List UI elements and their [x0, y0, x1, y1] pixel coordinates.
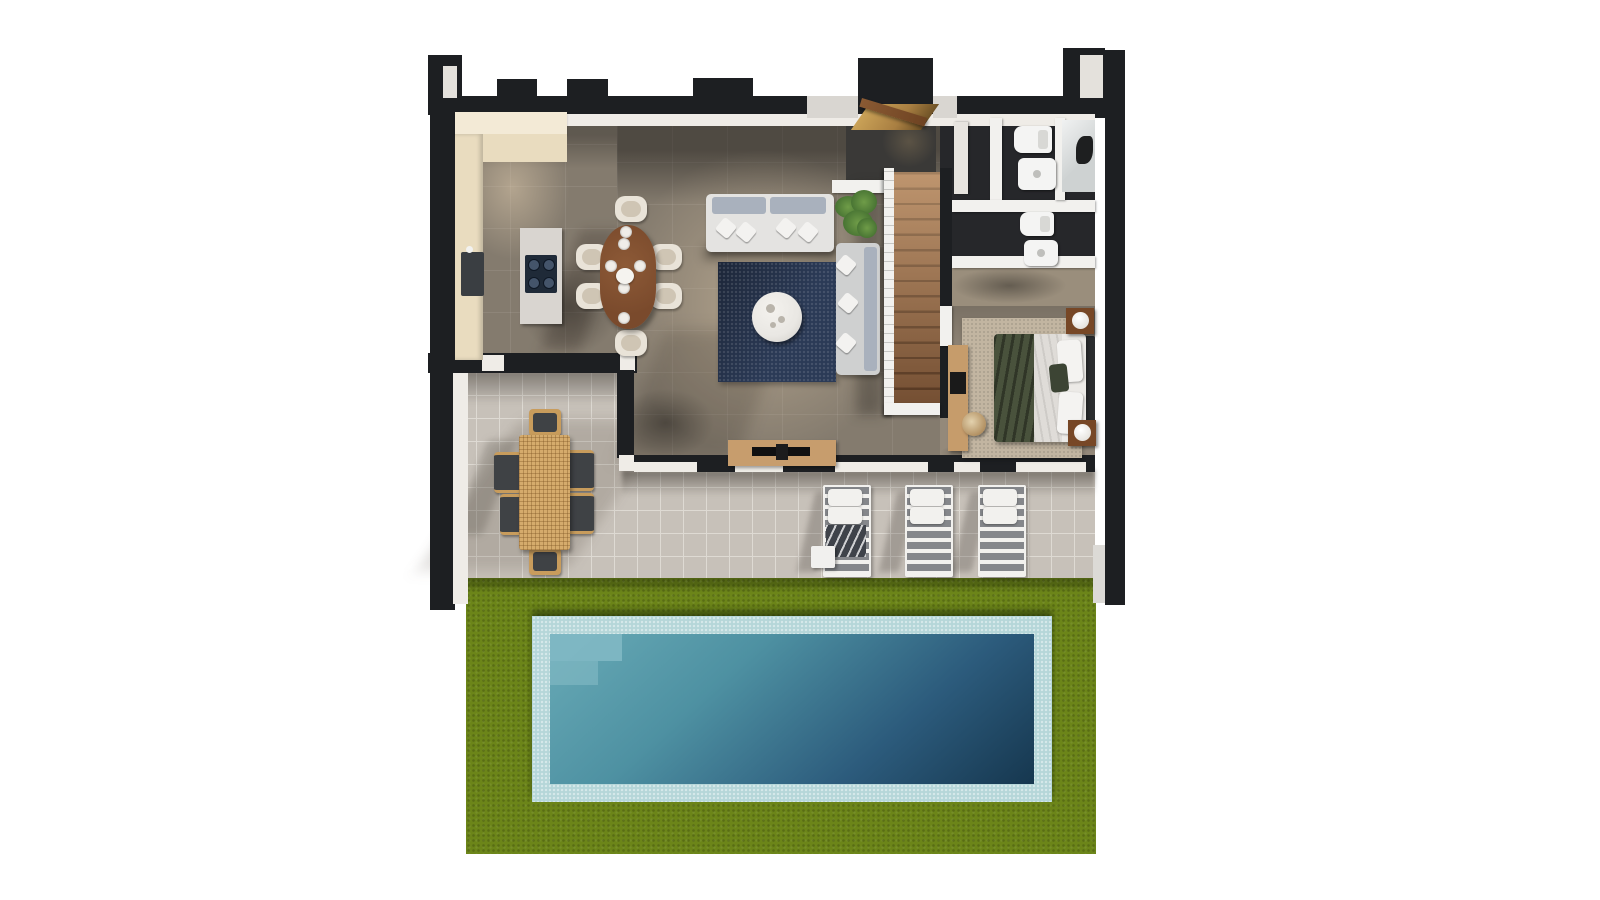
wall-right: [1105, 50, 1125, 605]
place-setting: [605, 260, 617, 272]
outdoor-chair: [566, 493, 594, 534]
door-frame: [620, 355, 635, 371]
stair-railing: [884, 168, 894, 415]
wall-parapet: [497, 79, 537, 109]
pillow: [735, 221, 758, 244]
sofa-side: [836, 243, 880, 375]
table-decor: [778, 316, 785, 323]
kitchen-counter: [470, 134, 567, 162]
washbasin: [1018, 158, 1056, 190]
coffee-table: [752, 292, 802, 342]
sun-lounger: [978, 485, 1026, 577]
pillow: [715, 217, 738, 240]
bed-cushion: [1049, 363, 1070, 393]
pool-step: [550, 661, 598, 685]
stair-landing: [884, 403, 940, 415]
wall-parapet: [567, 79, 608, 109]
lounger-pillow: [983, 507, 1017, 524]
pillow: [797, 221, 820, 244]
door-frame: [619, 455, 634, 471]
door-frame: [482, 355, 504, 371]
plant-foliage: [857, 218, 877, 238]
faucet: [466, 246, 473, 253]
desk: [948, 345, 968, 451]
laptop: [950, 372, 966, 394]
pillow: [835, 332, 858, 355]
lounger-pillow: [828, 489, 862, 506]
table-decor: [766, 304, 775, 313]
kitchen-counter: [455, 112, 567, 134]
washbasin: [1024, 240, 1058, 266]
sofa-cushion: [864, 247, 877, 371]
outdoor-chair: [494, 452, 522, 493]
outdoor-dining-table: [519, 435, 570, 550]
lounger-pillow: [828, 507, 862, 524]
wall-connector: [617, 370, 634, 458]
burner: [543, 277, 555, 289]
sun-lounger: [905, 485, 953, 577]
place-setting: [618, 238, 630, 250]
wall-bedroom: [940, 306, 952, 346]
sofa-cushion: [712, 197, 766, 214]
outdoor-chair: [566, 450, 594, 491]
wall-face: [443, 66, 457, 98]
toilet: [1014, 126, 1052, 153]
glass-wall-mullion: [928, 455, 954, 472]
pool-step: [550, 634, 622, 661]
table-lamp: [1074, 424, 1091, 441]
side-table: [811, 546, 835, 568]
burner: [543, 259, 555, 271]
potted-plant: [833, 190, 879, 246]
sofa-cushion: [770, 197, 826, 214]
tv-stand: [776, 444, 788, 460]
wall-bathroom: [990, 118, 1002, 200]
pool-water: [550, 634, 1034, 784]
terrace-parapet: [453, 370, 468, 604]
outdoor-chair: [529, 548, 561, 575]
lounger-pillow: [910, 507, 944, 524]
burner: [528, 259, 540, 271]
place-setting: [618, 312, 630, 324]
table-centerpiece: [616, 268, 634, 284]
floorplan-render: [0, 0, 1600, 900]
lounger-pillow: [983, 489, 1017, 506]
sofa-main: [706, 194, 834, 252]
wall-bathroom: [952, 200, 1095, 212]
pillow: [775, 217, 798, 240]
lounger-pillow: [910, 489, 944, 506]
outdoor-chair: [529, 409, 561, 436]
place-setting: [620, 226, 632, 238]
staircase: [894, 172, 940, 403]
pillow: [837, 292, 860, 315]
wall-face: [1080, 55, 1103, 98]
wall-parapet: [693, 78, 753, 108]
wall-face: [807, 96, 858, 118]
toilet: [1020, 212, 1054, 236]
bathroom-vanity: [954, 122, 968, 194]
wall-face: [1093, 545, 1105, 603]
table-lamp: [1072, 312, 1089, 329]
shower-fixture: [1076, 136, 1093, 164]
glass-wall-mullion: [1086, 455, 1095, 472]
pillow: [835, 254, 858, 277]
burner: [528, 277, 540, 289]
kitchen-sink: [461, 252, 484, 296]
place-setting: [634, 260, 646, 272]
desk-chair: [962, 412, 986, 436]
dining-chair: [615, 330, 647, 356]
dining-chair: [615, 196, 647, 222]
bed-throw: [994, 334, 1036, 442]
table-decor: [770, 322, 776, 328]
